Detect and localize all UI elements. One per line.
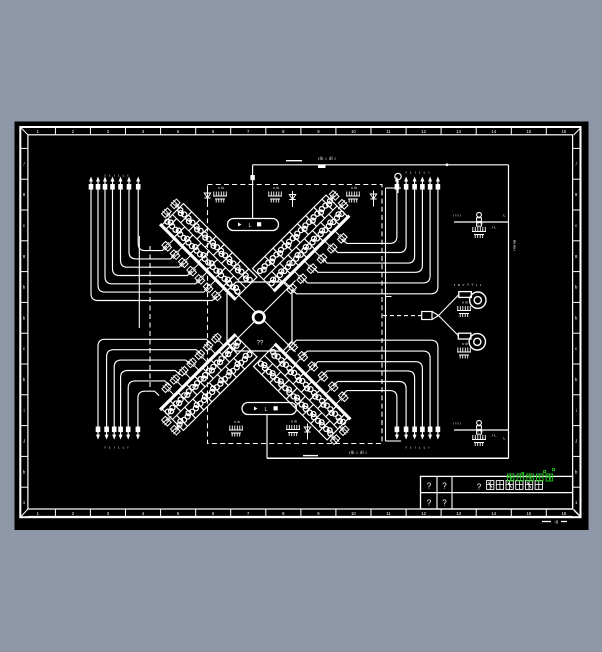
svg-text:13: 13 (456, 129, 461, 134)
svg-text:J: J (575, 439, 577, 444)
svg-text:i: i (576, 408, 577, 413)
svg-text:i: i (24, 408, 25, 413)
svg-text:r ʟ ı ʟ ʟ ı: r ʟ ı ʟ ʟ ı (105, 445, 130, 450)
svg-text:c: c (575, 346, 577, 351)
svg-text:ı l ı ı: ı l ı ı (453, 421, 461, 426)
svg-text:ıı ılı: ıı ılı (351, 186, 357, 190)
svg-text:ıı ılı: ıı ılı (477, 222, 483, 226)
svg-text:ıllı ı ıll ı: ıllı ı ıll ı (318, 156, 336, 161)
svg-text:r ь > ? ? ʟ ʟ: r ь > ? ? ʟ ʟ (454, 282, 482, 287)
svg-text:ı l ı ı: ı l ı ı (453, 213, 461, 218)
svg-text:c: c (23, 223, 25, 228)
svg-text:ıı ılı: ıı ılı (477, 430, 483, 434)
svg-text:15: 15 (526, 129, 531, 134)
svg-text:. r L: . r L (490, 433, 498, 438)
svg-text:?: ? (442, 499, 447, 508)
svg-text:ıı ılı: ıı ılı (291, 420, 297, 424)
svg-text:11: 11 (386, 511, 391, 516)
svg-text:r ʟ ı ʟ ʟ ı: r ʟ ı ʟ ʟ ı (406, 170, 431, 175)
svg-text:13: 13 (456, 511, 461, 516)
svg-text:12: 12 (421, 129, 426, 134)
svg-text:16: 16 (561, 129, 566, 134)
svg-text:. r L: . r L (490, 225, 498, 230)
svg-text:c: c (23, 346, 25, 351)
svg-text:?: ? (427, 499, 432, 508)
svg-text:12: 12 (421, 511, 426, 516)
svg-text:c: c (575, 223, 577, 228)
svg-text:ıı ılı: ıı ılı (273, 186, 279, 190)
svg-text:14: 14 (491, 129, 496, 134)
svg-text:·8: ·8 (554, 520, 558, 525)
svg-text:14: 14 (491, 511, 496, 516)
svg-text:r ʟ ı ʟ ʟ ı: r ʟ ı ʟ ʟ ı (105, 173, 130, 178)
svg-text:L: L (264, 407, 267, 413)
svg-text:J: J (23, 439, 25, 444)
svg-text:16: 16 (561, 511, 566, 516)
svg-text:L: L (248, 223, 251, 229)
svg-text:?: ? (442, 482, 447, 491)
svg-text:ıı ılı: ıı ılı (462, 342, 468, 346)
svg-text:11: 11 (386, 129, 391, 134)
svg-text:ıı ılı: ıı ılı (462, 301, 468, 305)
svg-text:10: 10 (351, 511, 356, 516)
svg-text:10: 10 (351, 129, 356, 134)
svg-text:ʙıʟʜıʟı: ʙıʟʜıʟı (513, 240, 518, 251)
svg-text:ıı ılı: ıı ılı (218, 186, 224, 190)
svg-text:?: ? (427, 482, 432, 491)
svg-text:15: 15 (526, 511, 531, 516)
svg-text:r ʟ ı ʟ ʟ ı: r ʟ ı ʟ ʟ ı (406, 445, 431, 450)
svg-text:??: ?? (257, 341, 264, 347)
svg-text:ıı ılı: ıı ılı (234, 420, 240, 424)
svg-text:?: ? (477, 483, 482, 492)
svg-text:ıllı ı ıll ı: ıllı ı ıll ı (349, 450, 367, 455)
